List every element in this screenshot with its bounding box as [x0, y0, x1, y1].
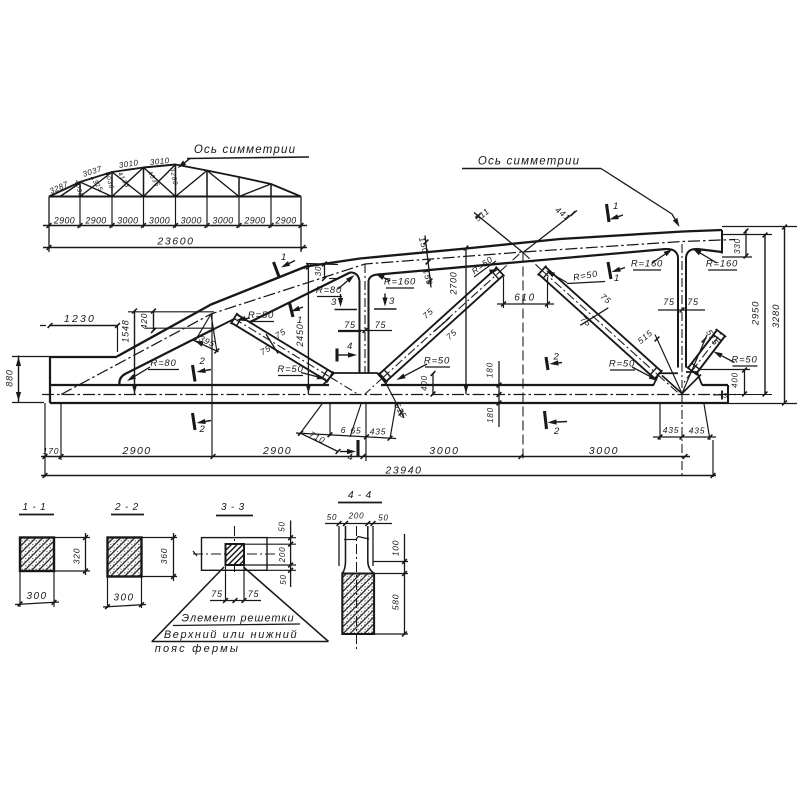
svg-text:R=160: R=160: [706, 259, 738, 270]
svg-text:4: 4: [347, 452, 353, 463]
svg-text:75: 75: [663, 297, 675, 307]
svg-text:75: 75: [344, 320, 356, 330]
svg-text:R=50: R=50: [248, 310, 274, 321]
svg-text:30: 30: [314, 266, 323, 277]
svg-text:580: 580: [391, 594, 401, 611]
svg-text:2900: 2900: [53, 216, 75, 226]
svg-text:75: 75: [211, 589, 223, 599]
svg-text:1: 1: [281, 252, 287, 263]
svg-text:1: 1: [613, 201, 619, 212]
svg-text:4 - 4: 4 - 4: [348, 490, 372, 501]
svg-text:320: 320: [72, 548, 82, 565]
svg-text:1: 1: [297, 315, 303, 326]
svg-text:65: 65: [350, 426, 361, 436]
svg-text:2: 2: [552, 352, 559, 363]
svg-text:300: 300: [27, 591, 48, 602]
svg-text:3000: 3000: [149, 216, 170, 226]
svg-text:Элемент решетки: Элемент решетки: [181, 613, 294, 625]
svg-text:Ось симметрии: Ось симметрии: [194, 144, 296, 156]
svg-text:2900: 2900: [274, 216, 296, 226]
svg-text:880: 880: [5, 369, 15, 386]
svg-text:R=50: R=50: [424, 356, 450, 367]
svg-text:2900: 2900: [243, 216, 265, 226]
svg-text:3: 3: [389, 296, 395, 307]
svg-text:50: 50: [278, 521, 287, 532]
svg-text:1230: 1230: [64, 313, 96, 325]
svg-text:2700: 2700: [449, 271, 459, 295]
svg-text:2: 2: [553, 426, 560, 437]
svg-text:50: 50: [327, 513, 338, 522]
svg-text:6: 6: [341, 425, 347, 435]
svg-text:3000: 3000: [429, 445, 460, 457]
svg-text:3280: 3280: [771, 304, 782, 328]
svg-text:4: 4: [347, 341, 353, 352]
svg-text:200: 200: [348, 512, 365, 521]
svg-text:360: 360: [159, 548, 169, 565]
svg-text:R=80: R=80: [150, 358, 176, 369]
svg-text:2: 2: [198, 356, 205, 367]
svg-text:435: 435: [370, 427, 387, 437]
svg-text:435: 435: [689, 426, 706, 436]
svg-text:180: 180: [486, 407, 495, 423]
svg-text:75: 75: [375, 320, 387, 330]
svg-text:3000: 3000: [117, 216, 138, 226]
svg-text:2 - 2: 2 - 2: [114, 502, 139, 513]
svg-text:23600: 23600: [156, 236, 194, 248]
svg-text:100: 100: [391, 540, 401, 557]
svg-text:2900: 2900: [262, 445, 292, 457]
svg-text:3000: 3000: [181, 216, 202, 226]
svg-text:3000: 3000: [589, 445, 620, 457]
svg-text:50: 50: [378, 514, 389, 523]
svg-text:R=80: R=80: [316, 285, 342, 296]
svg-text:1548: 1548: [121, 319, 131, 342]
svg-text:300: 300: [114, 593, 135, 604]
svg-text:75: 75: [248, 589, 260, 599]
svg-text:50: 50: [279, 574, 288, 585]
svg-text:23940: 23940: [384, 465, 422, 477]
svg-text:Верхний или нижний: Верхний или нижний: [164, 629, 298, 641]
svg-text:400: 400: [420, 375, 429, 391]
svg-text:2900: 2900: [122, 445, 152, 457]
svg-text:610: 610: [514, 293, 536, 304]
svg-text:3: 3: [331, 297, 337, 308]
svg-text:R=160: R=160: [631, 259, 663, 270]
svg-text:2950: 2950: [751, 301, 762, 326]
svg-text:75: 75: [687, 297, 699, 307]
svg-text:пояс фермы: пояс фермы: [155, 643, 240, 655]
svg-text:R=50: R=50: [277, 364, 303, 375]
svg-text:435: 435: [663, 425, 680, 435]
svg-text:400: 400: [731, 372, 740, 388]
svg-text:R=50: R=50: [731, 355, 757, 366]
svg-text:R=160: R=160: [384, 277, 416, 288]
svg-text:3 - 3: 3 - 3: [221, 502, 245, 513]
svg-text:170: 170: [43, 446, 60, 456]
svg-text:330: 330: [733, 238, 742, 254]
svg-text:1 - 1: 1 - 1: [22, 502, 46, 513]
svg-text:180: 180: [486, 362, 495, 378]
svg-text:R=50: R=50: [609, 359, 635, 370]
svg-text:200: 200: [278, 547, 287, 564]
svg-text:3: 3: [723, 393, 728, 400]
svg-text:2900: 2900: [84, 216, 106, 226]
svg-text:2450: 2450: [295, 323, 305, 347]
svg-text:2: 2: [198, 424, 205, 435]
svg-text:420: 420: [139, 313, 149, 330]
svg-text:Ось симметрии: Ось симметрии: [478, 156, 580, 168]
svg-text:3000: 3000: [212, 216, 233, 226]
svg-text:1: 1: [614, 273, 620, 284]
